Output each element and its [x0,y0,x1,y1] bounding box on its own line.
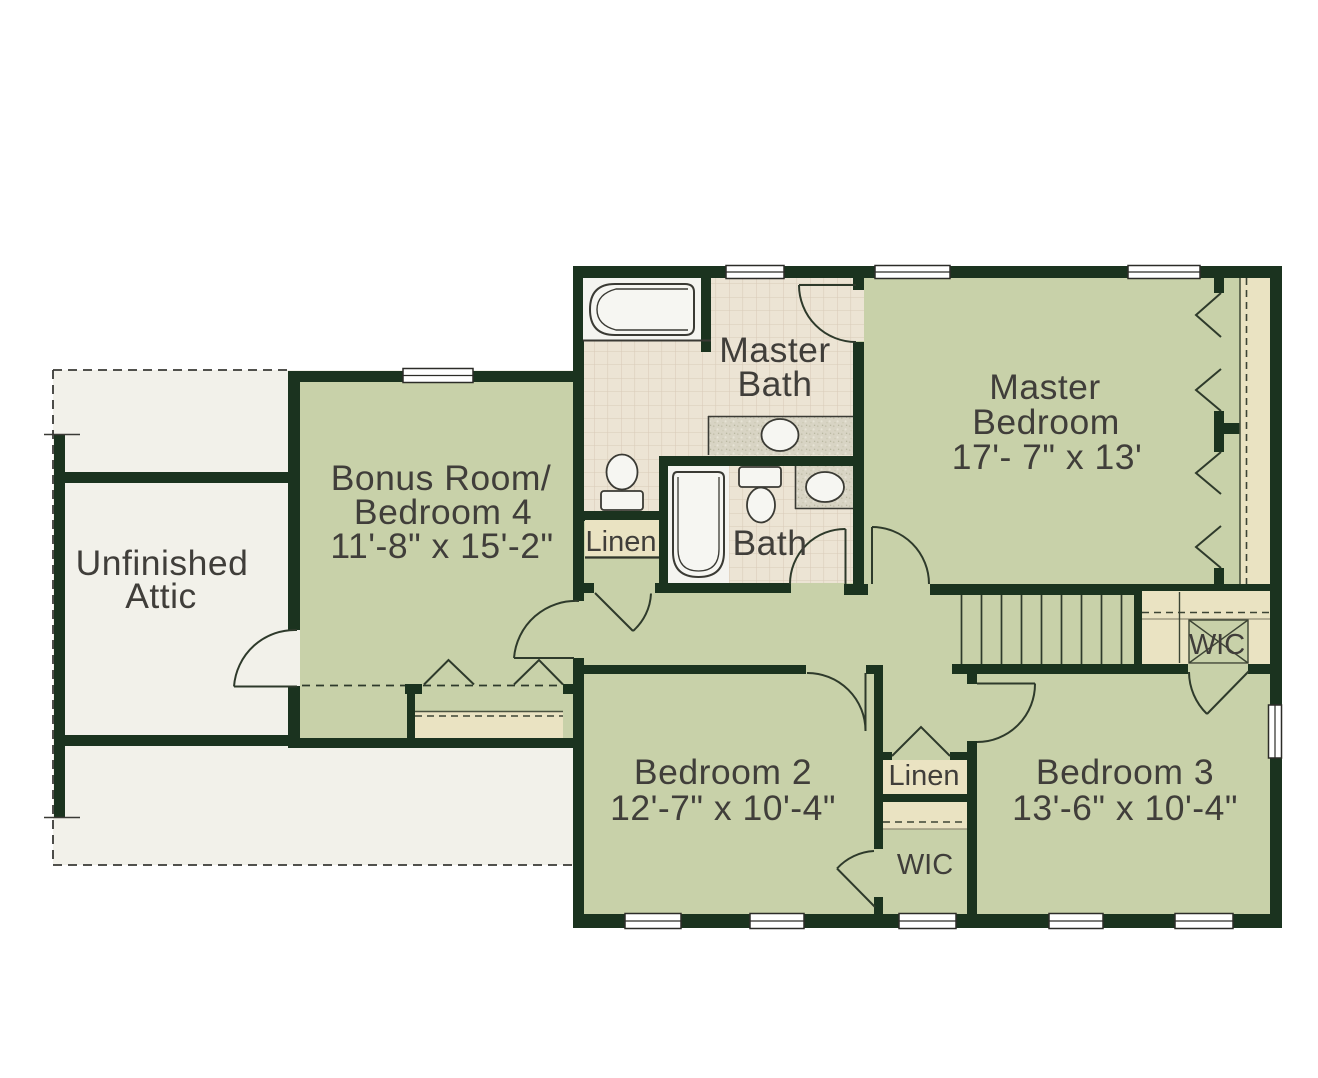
svg-text:WIC: WIC [1189,629,1245,661]
svg-text:11'-8" x 15'-2": 11'-8" x 15'-2" [330,526,553,566]
svg-text:Bath: Bath [732,523,807,563]
svg-text:Master: Master [989,367,1101,407]
svg-text:Bath: Bath [737,364,812,404]
svg-text:Linen: Linen [889,760,960,792]
svg-text:Bedroom 3: Bedroom 3 [1036,752,1214,792]
svg-text:13'-6" x 10'-4": 13'-6" x 10'-4" [1012,788,1238,828]
svg-text:Bedroom: Bedroom [972,402,1120,442]
svg-text:Attic: Attic [125,576,197,616]
svg-text:Linen: Linen [586,526,657,558]
svg-text:Bedroom 2: Bedroom 2 [634,752,812,792]
svg-text:17'- 7" x 13': 17'- 7" x 13' [952,437,1143,477]
svg-text:12'-7" x 10'-4": 12'-7" x 10'-4" [610,788,836,828]
svg-text:WIC: WIC [897,849,953,881]
